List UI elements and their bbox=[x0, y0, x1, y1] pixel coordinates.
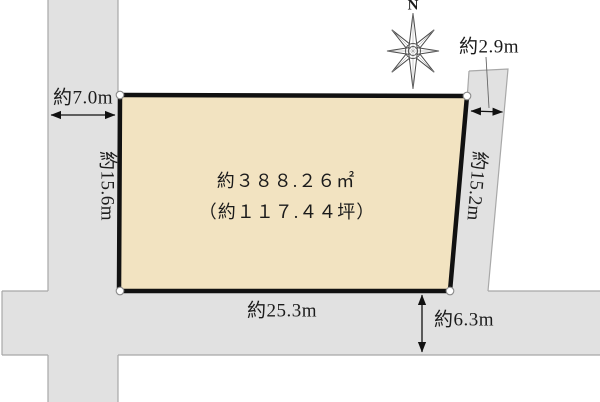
corner-marker-se bbox=[446, 287, 454, 295]
south-road-width-label: 約6.3m bbox=[434, 311, 494, 330]
corner-marker-nw bbox=[116, 91, 124, 99]
plot-shape bbox=[119, 95, 467, 291]
plot-area-sqm-label: 約３８８.２６㎡ bbox=[217, 172, 356, 190]
site-plan-diagram: N 約7.0m 約15.6m 約2.9m 約15.2m 約25.3m 約6.3m… bbox=[0, 0, 600, 402]
south-boundary-length-label: 約25.3m bbox=[247, 302, 317, 321]
west-boundary-length-label: 約15.6m bbox=[98, 151, 117, 221]
west-road-width-label: 約7.0m bbox=[53, 89, 113, 108]
corner-marker-ne bbox=[463, 92, 471, 100]
compass-north-label: N bbox=[408, 0, 419, 14]
plot-area-tsubo-label: （約１１７.４４坪） bbox=[199, 203, 376, 221]
compass-rose-icon bbox=[387, 13, 439, 89]
east-road-width-label: 約2.9m bbox=[459, 38, 519, 57]
site-plan-canvas bbox=[0, 0, 600, 402]
corner-marker-sw bbox=[116, 287, 124, 295]
